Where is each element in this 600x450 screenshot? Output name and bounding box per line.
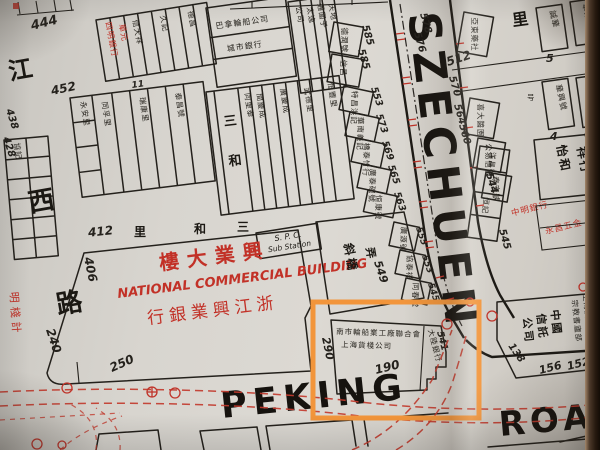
shop-label: 間慶成 <box>255 93 269 120</box>
shop-label: 怡和 <box>554 143 574 173</box>
red-mark <box>13 3 19 9</box>
street-number: 428 <box>0 135 17 159</box>
shop-label: 同里泰 <box>242 92 256 119</box>
shop-label: 忠信行 <box>587 79 600 108</box>
street-map: 四明銀行 單元 信大祥 久記 德昌 巴拿輪船公司 城市銀行 公司 太逸 通圍子 … <box>0 0 600 450</box>
map-photo: 四明銀行 單元 信大祥 久記 德昌 巴拿輪船公司 城市銀行 公司 太逸 通圍子 … <box>0 0 600 450</box>
street-char: 和 <box>193 221 206 236</box>
shop-label: 恒康號 <box>373 195 384 221</box>
kiangse-char: 西 <box>26 185 57 219</box>
road-label: ROAD <box>497 394 600 445</box>
lane-char: 三 <box>223 114 238 130</box>
corner-label-2: 上海貨棧公司 <box>341 339 392 351</box>
shop-label: 廣慶成 <box>278 88 292 115</box>
street-number: 585 <box>355 48 371 71</box>
street-char: 三 <box>237 220 249 234</box>
west-shop-column: 德潤號 信昌 特昌洪記 華南義記 橋泰竹行 廣泰碗號 恒康號 585 585 5… <box>327 22 408 224</box>
street-number: 563 <box>391 191 408 214</box>
shop-label: 号 <box>527 93 536 102</box>
landmark-labels: 樓大業興 NATIONAL COMMERCIAL BUILDING 行銀業興江浙 <box>117 237 369 328</box>
shop-label: 喜大醬園 <box>476 104 486 138</box>
lane-char: 和 <box>228 152 243 169</box>
street-number: 412 <box>86 223 113 240</box>
shop-label: 恒豐里 <box>326 82 340 109</box>
street-number: 250 <box>108 352 137 375</box>
lane-char: 里 <box>511 9 530 30</box>
landmark-bank: 行銀業興江浙 <box>146 293 279 329</box>
shop-label: 廣源號 <box>398 227 409 253</box>
shop-label: 公司 <box>294 6 306 24</box>
shop-label: 久記 <box>158 14 171 33</box>
street-number: 585 <box>359 24 375 47</box>
shop-label: 亞東藥社 <box>470 18 480 52</box>
trust-label: 中國 <box>548 309 565 336</box>
shop-label: 信大祥 <box>131 19 146 46</box>
street-number: 452 <box>49 79 77 98</box>
street-number: 7 <box>585 40 593 53</box>
street-char: 里 <box>134 224 146 239</box>
shop-label: 誠華 <box>548 9 562 29</box>
shop-label: 恒記 <box>480 197 492 215</box>
street-number: 290 <box>319 336 337 362</box>
shop-label: 華興號 <box>554 83 570 112</box>
shop-label: 單元 <box>117 23 129 42</box>
shop-label: 城市銀行 <box>226 39 263 54</box>
street-number: 240 <box>43 327 64 355</box>
trust-label: 公司 <box>520 317 536 344</box>
shop-label: 同孚里 <box>100 101 114 128</box>
shop-label: 德昌 <box>186 10 199 29</box>
shop-label: 信昌 <box>339 60 349 77</box>
red-shop-label: 中明銀行 <box>510 199 550 219</box>
street-number: 545 <box>496 228 512 251</box>
street-number: 5 <box>546 52 554 65</box>
street-number: 444 <box>28 13 59 34</box>
street-number: 544 <box>483 172 499 195</box>
street-number: 565 <box>385 164 402 187</box>
shop-label: 太逸 <box>305 6 318 24</box>
block-top-mid: 巴拿輪船公司 城市銀行 <box>206 0 296 87</box>
shop-label: 德潤號 <box>340 28 350 54</box>
szechuen-label: SZECHUEN <box>397 9 487 334</box>
street-number: 4 <box>549 130 558 143</box>
trust-label: 信託 <box>534 313 551 340</box>
red-left-label: 明棧計 <box>7 291 24 337</box>
street-number: 549 <box>371 259 391 285</box>
shop-label: 華東公司 <box>580 2 597 37</box>
shop-label: 協泰祥 <box>404 255 415 281</box>
street-number: 406 <box>81 255 100 283</box>
block-label: 弄 <box>363 245 378 259</box>
left-page-blocks: 四明銀行 單元 信大祥 久記 德昌 巴拿輪船公司 城市銀行 公司 太逸 通圍子 … <box>0 0 388 384</box>
street-number: 138 <box>506 341 527 364</box>
street-number: 156 <box>538 359 564 377</box>
kiangse-char: 江 <box>6 54 34 86</box>
block-444: 四明銀行 單元 信大祥 久記 德昌 <box>96 2 216 81</box>
street-number: 438 <box>3 107 20 131</box>
street-number: 573 <box>373 113 390 136</box>
block-452: 同孚里 瑞康里 泰昌號 永安里 <box>70 82 215 198</box>
street-number: 11 <box>131 79 145 91</box>
corner-label-1: 南市輪船業工廠聯合會 <box>336 326 421 339</box>
shop-label: 天地 <box>327 3 340 21</box>
block-sanho: 三 和 同里泰 間慶成 廣慶成 武德里 恒豐里 <box>206 76 354 215</box>
shop-label: 永安里 <box>79 100 93 127</box>
shop-label: 巴拿輪船公司 <box>215 13 270 30</box>
kiangse-char: 路 <box>54 286 86 321</box>
